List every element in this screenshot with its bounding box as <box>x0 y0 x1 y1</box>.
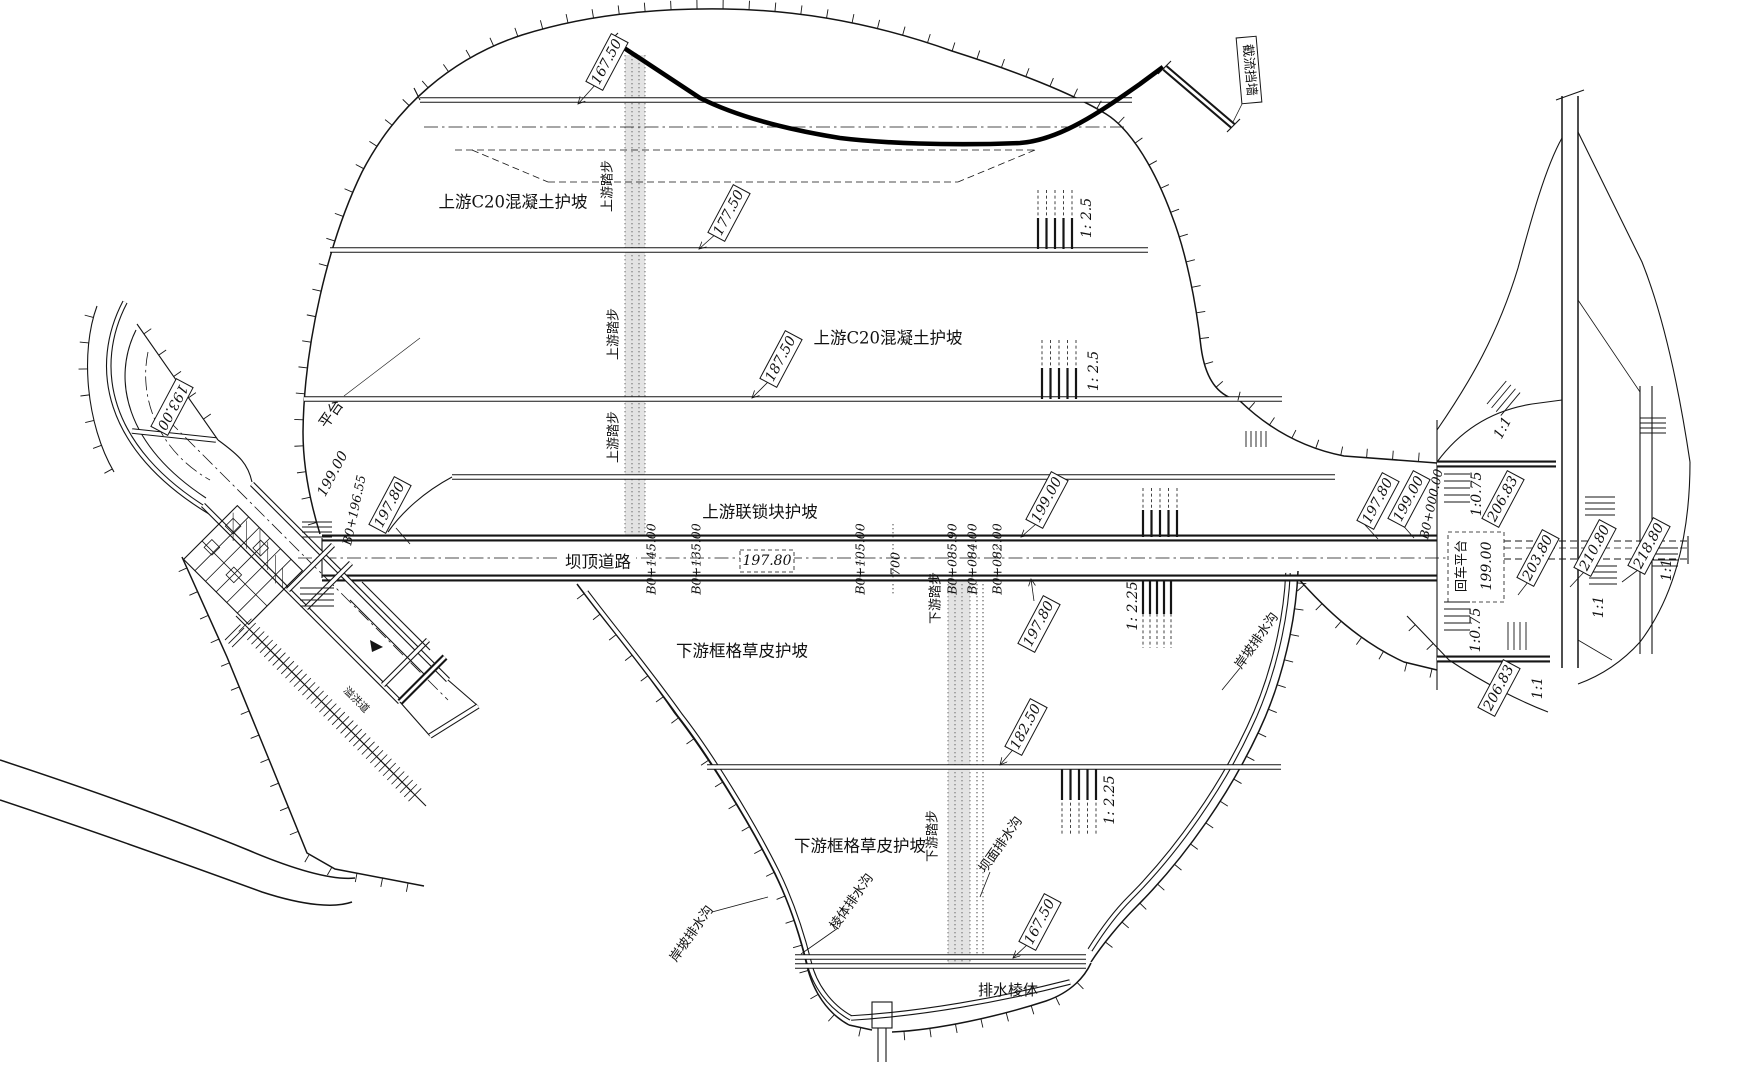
slope-label-2-25-b: 1: 2.25 <box>1102 775 1118 824</box>
station-label-084: B0+084.00 <box>965 523 980 595</box>
zone-label-upstream-concrete-2: 上游C20混凝土护坡 <box>813 329 962 348</box>
station-label-105: B0+105.00 <box>853 523 868 595</box>
zone-label-downstream-grass-2: 下游框格草皮护坡 <box>794 837 926 856</box>
station-label-135: B0+135.00 <box>689 523 704 595</box>
slope-label-075-a: 1:0.75 <box>1469 472 1485 517</box>
station-label-082: B0+082.00 <box>990 523 1005 595</box>
zone-label-upstream-concrete-1: 上游C20混凝土护坡 <box>438 193 587 212</box>
slope-label-11-b: 1:1 <box>1530 677 1546 700</box>
slope-label-2-5-a: 1: 2.5 <box>1079 198 1095 238</box>
slope-label-2-5-b: 1: 2.5 <box>1086 351 1102 391</box>
upstream-steps-label-3: 上游踏步 <box>607 411 622 463</box>
turn-platform-label: 回车平台 <box>1454 540 1470 592</box>
slope-label-11-c: 1:1 <box>1591 596 1607 619</box>
dam-plan-drawing: 上游C20混凝土护坡 上游C20混凝土护坡 上游联锁块护坡 坝顶道路 下游框格草… <box>0 0 1741 1079</box>
slope-label-075-b: 1:0.75 <box>1468 608 1484 653</box>
dimension-label-700: 700 <box>888 552 903 576</box>
station-label-085: B0+085.90 <box>945 523 960 595</box>
station-label-145: B0+145.00 <box>644 523 659 595</box>
prism-label: 排水棱体 <box>978 981 1038 999</box>
zone-label-downstream-grass-1: 下游框格草皮护坡 <box>676 642 808 661</box>
svg-text:197.80: 197.80 <box>743 553 792 569</box>
road-elevation-label: 197.80 <box>740 550 794 572</box>
zone-label-upstream-interlock: 上游联锁块护坡 <box>702 503 818 522</box>
turn-platform-elevation: 199.00 <box>1479 541 1495 590</box>
slope-label-2-25-a: 1: 2.25 <box>1125 581 1141 630</box>
downstream-stairs-strip <box>948 580 970 967</box>
upstream-steps-label-2: 上游踏步 <box>607 308 622 360</box>
slope-label-11-d: 1:1 <box>1659 559 1675 582</box>
downstream-steps-label-2: 下游踏步 <box>926 810 941 862</box>
downstream-steps-label-1: 下游踏步 <box>929 572 944 624</box>
upstream-steps-label-1: 上游踏步 <box>601 160 616 212</box>
road-name-label: 坝顶道路 <box>565 553 632 572</box>
